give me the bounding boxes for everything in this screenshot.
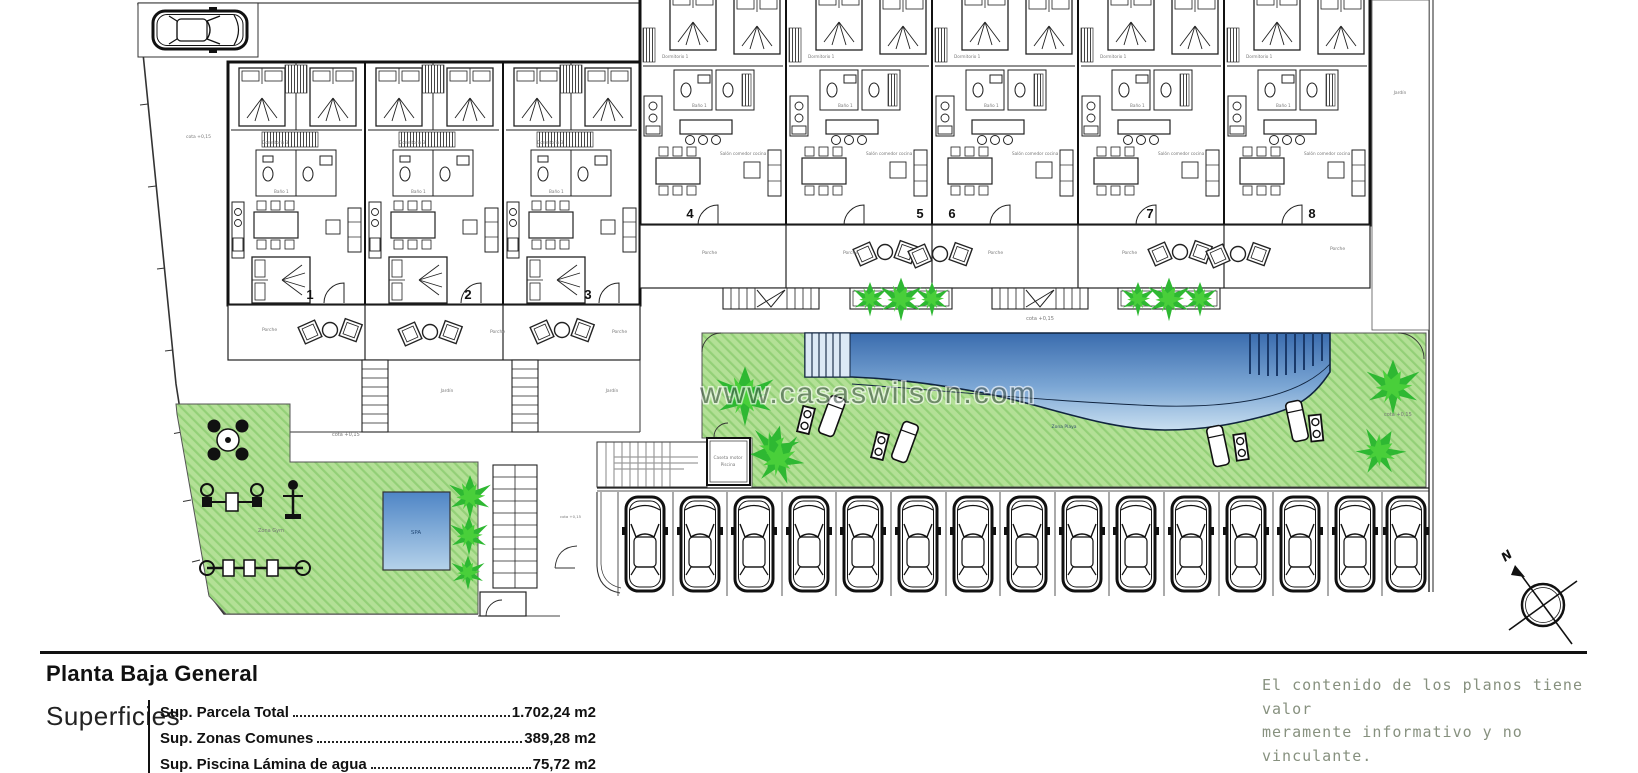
north-label: N (1499, 547, 1515, 564)
porch-label: Porche (262, 327, 277, 333)
watermark-text: www.casaswilson.com (699, 377, 1036, 410)
car-icon (153, 7, 247, 53)
disclaimer-line: El contenido de los planos tiene valor (1262, 674, 1638, 721)
stairs-icon (493, 465, 537, 588)
garden-strip-left: Jardín Jardín cota +0,15 (290, 360, 640, 438)
north-arrow (1511, 565, 1525, 577)
cota-label: cota +0,15 (560, 514, 582, 519)
porch-label: Porche (490, 329, 505, 335)
porch-label: Porche (1122, 250, 1137, 256)
unit-number: 5 (916, 206, 923, 221)
zone-label: Zona Gym (258, 528, 284, 534)
cota-label: cota +0,15 (332, 432, 360, 438)
surface-value: 389,28 m2 (524, 730, 596, 747)
spa-label: SPA (411, 530, 421, 536)
pool-zone-label: Zona Playa (1051, 424, 1076, 430)
cota-label: cota +0,15 (186, 134, 211, 140)
parking-row: cota +0,15 (555, 488, 1429, 596)
unit-number: 2 (464, 287, 471, 302)
porch-row-left: Porche Porche Porche (228, 305, 640, 360)
unit-number: 4 (686, 206, 694, 221)
pedestrian-gate-arc (555, 546, 577, 568)
garden-label: Jardín (440, 387, 454, 394)
garden-label: Jardín (1393, 89, 1407, 96)
utility-room (480, 592, 526, 616)
surface-value: 75,72 m2 (533, 756, 596, 773)
floor-plan-page: Dormitorio 3 Baño 1 (0, 0, 1638, 773)
porch-label: Porche (843, 250, 858, 256)
dot-leader (317, 741, 522, 743)
porch-label: Porche (612, 329, 627, 335)
unit-number: 3 (584, 287, 591, 302)
parking-bay-lines (618, 492, 1382, 596)
surface-measurements: Sup. Parcela Total 1.702,24 m2 Sup. Zona… (160, 704, 596, 773)
disclaimer-line: meramente informativo y no vinculante. (1262, 721, 1638, 768)
cota-label: cota +0,15 (1026, 316, 1054, 322)
dot-leader (371, 767, 531, 769)
site-plan-drawing: Dormitorio 3 Baño 1 (0, 0, 1638, 655)
machinery-room-label: Caseta motor (713, 455, 742, 461)
side-garden-strip: Jardín (1372, 0, 1429, 330)
porch-row-right: Porche Porche Porche Porche Porche (640, 225, 1370, 288)
surface-row: Sup. Zonas Comunes 389,28 m2 (160, 730, 596, 747)
surface-label: Sup. Parcela Total (160, 704, 289, 721)
building-block-right: 4 5 6 7 8 Jardín Porche Porche Porche Po… (640, 0, 1429, 330)
machinery-room-label: Piscina (721, 462, 736, 468)
surface-label: Sup. Piscina Lámina de agua (160, 756, 367, 773)
porch-label: Porche (1330, 246, 1345, 252)
unit-number: 1 (306, 287, 313, 302)
unit-number: 6 (948, 206, 955, 221)
garden-label: Jardín (605, 387, 619, 394)
pool-steps (805, 333, 850, 377)
dot-leader (293, 715, 510, 717)
surface-label: Sup. Zonas Comunes (160, 730, 313, 747)
porch-label: Porche (702, 250, 717, 256)
surface-row: Sup. Parcela Total 1.702,24 m2 (160, 704, 596, 721)
surface-row: Sup. Piscina Lámina de agua 75,72 m2 (160, 756, 596, 773)
cota-label: cota +0,15 (1384, 412, 1412, 418)
bike-rack-area (597, 442, 707, 487)
title-block-rule (40, 651, 1587, 654)
surface-value: 1.702,24 m2 (512, 704, 596, 721)
building-block-left: 1 2 3 Porche Porche Porche Jardín Jardín… (228, 62, 640, 438)
pool-garden-zone: Zona Playa cota +0,15 www.casaswilson.co… (699, 333, 1426, 493)
porch-label: Porche (988, 250, 1003, 256)
compass-rose: N (1499, 547, 1577, 644)
unit-number: 7 (1146, 206, 1153, 221)
page-title: Planta Baja General (46, 661, 258, 687)
title-block-divider (148, 700, 150, 773)
unit-number: 8 (1308, 206, 1315, 221)
legal-disclaimer: El contenido de los planos tiene valor m… (1262, 674, 1638, 768)
